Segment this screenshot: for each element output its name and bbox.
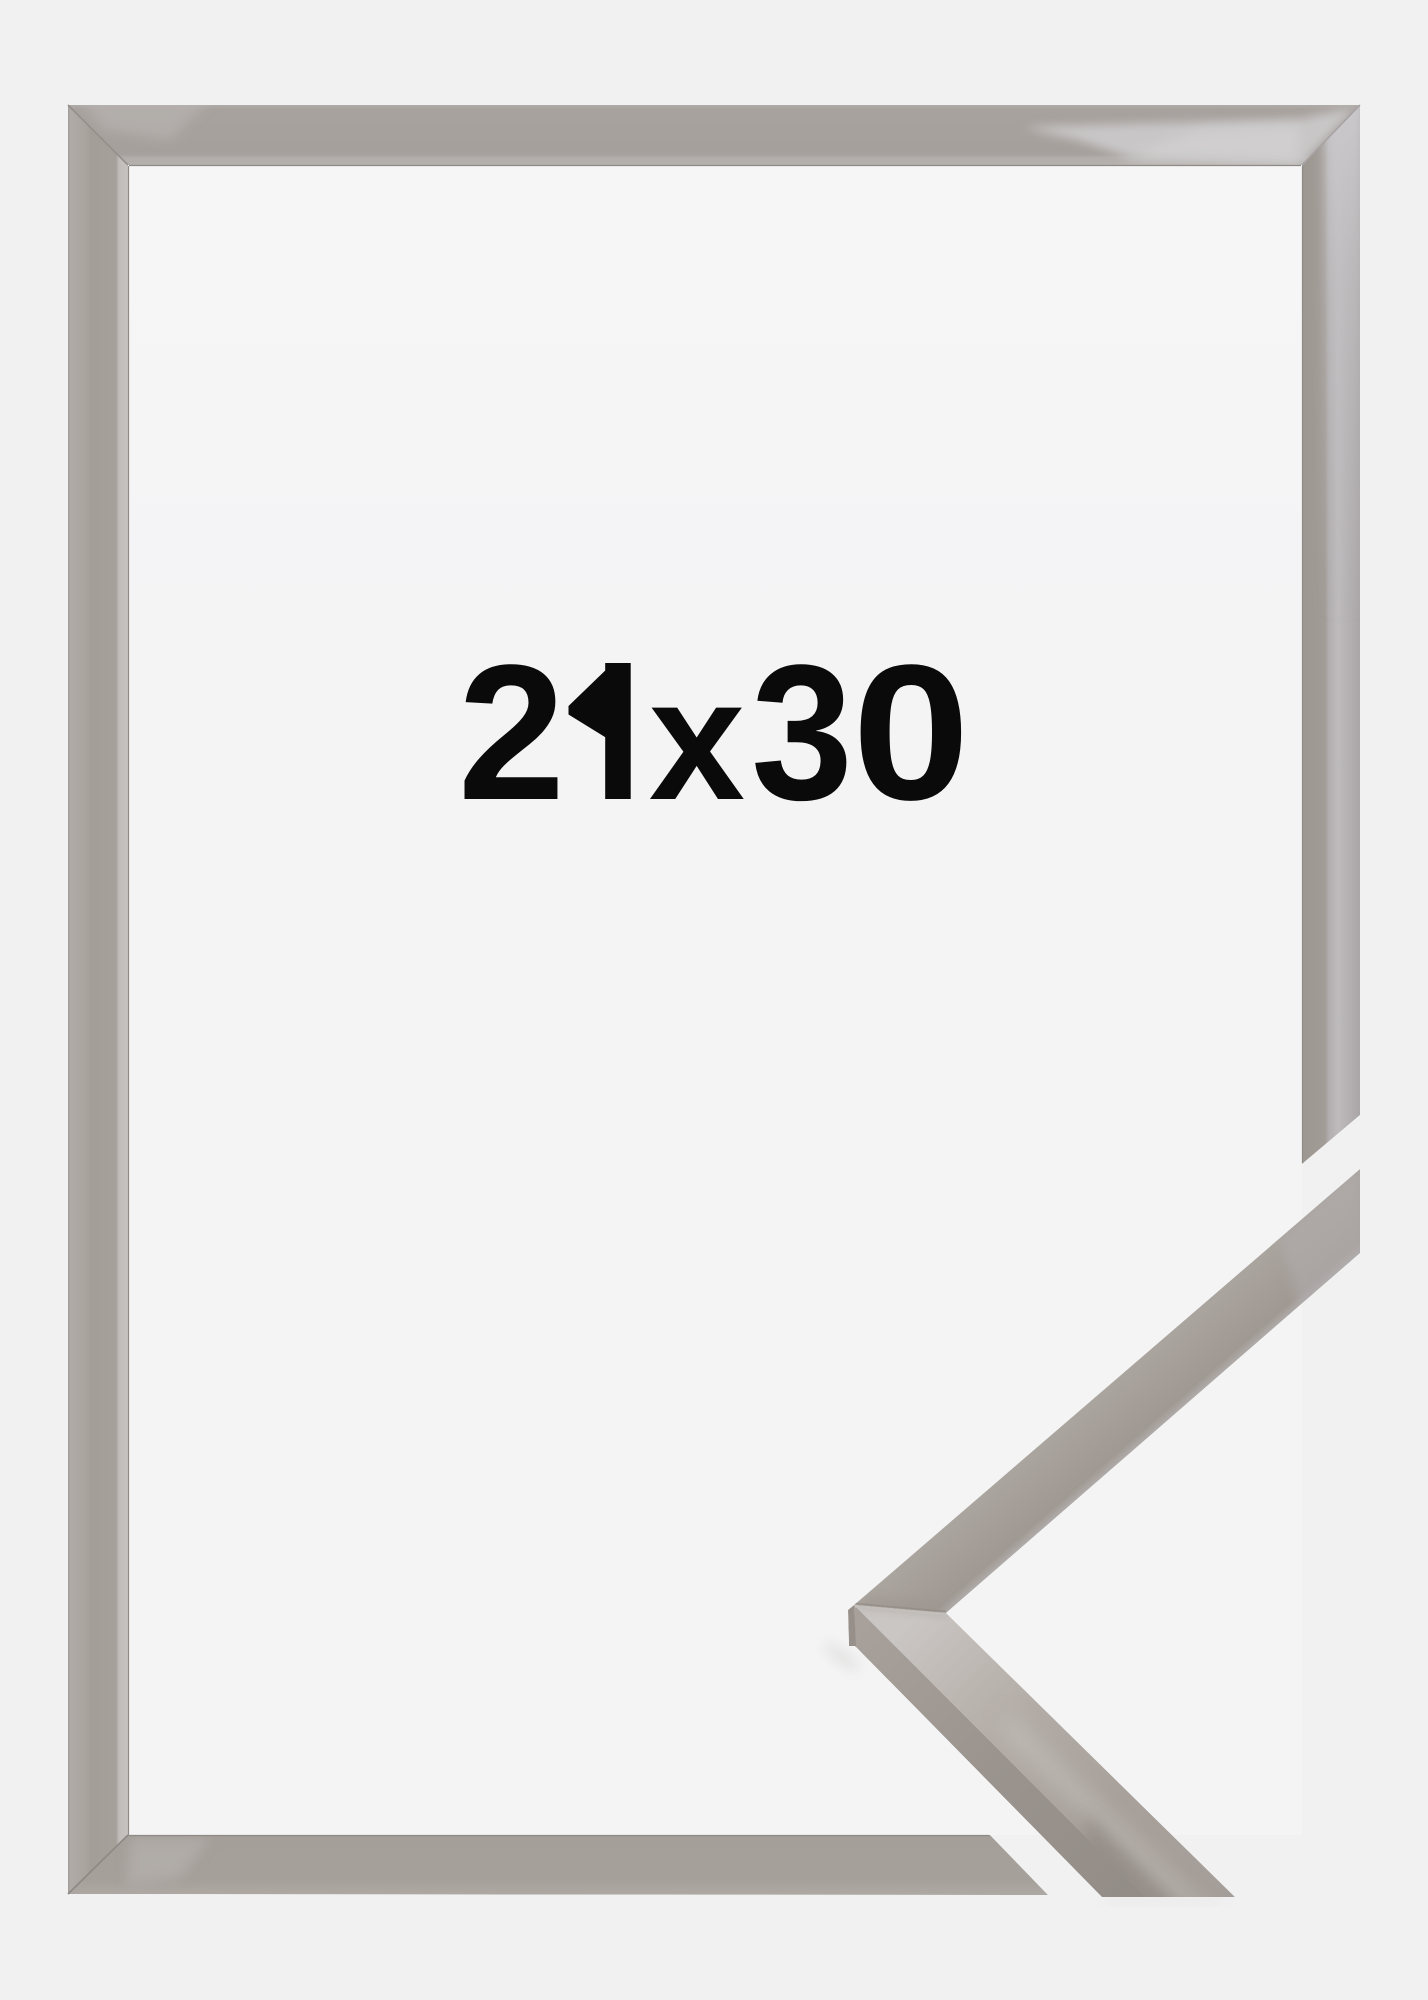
svg-text:x: x: [649, 642, 745, 836]
svg-text:2: 2: [458, 624, 565, 840]
svg-text:0: 0: [852, 624, 970, 840]
svg-text:3: 3: [751, 625, 853, 840]
